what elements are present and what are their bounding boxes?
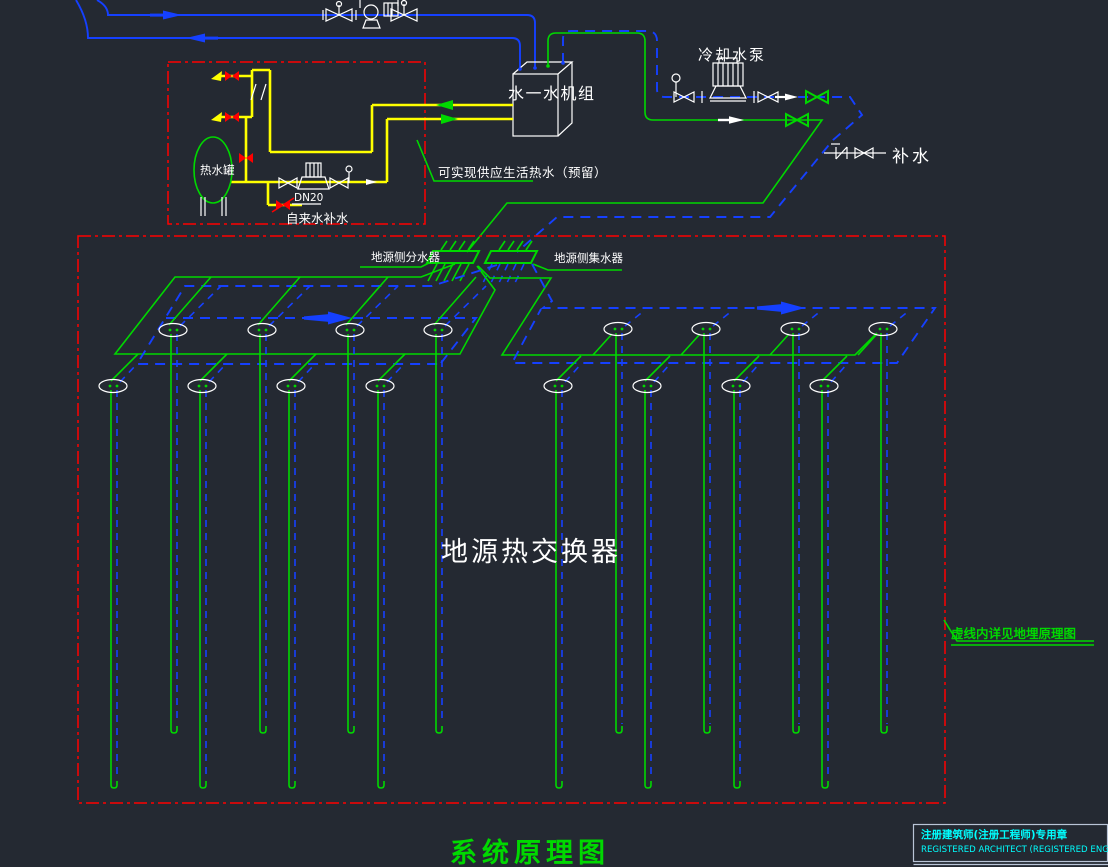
borehole-wellhead [810, 380, 838, 393]
dhw-note-label: 可实现供应生活热水（预留） [438, 165, 607, 180]
borehole-wellhead [99, 380, 127, 393]
ground-hx-label: 地源热交换器 [441, 537, 621, 568]
borehole-wellhead [277, 380, 305, 393]
tank-label: 热水罐 [200, 163, 235, 177]
borehole-wellhead [424, 324, 452, 337]
makeup-water-connection: 补水 [824, 144, 932, 167]
dashed-note: 虚线内详见地埋原理图 [944, 620, 1094, 645]
supply-manifold-label: 地源侧分水器 [371, 250, 440, 264]
tap-water-pump-icon [279, 163, 377, 189]
borehole-wellhead [188, 380, 216, 393]
borehole-wellhead [633, 380, 661, 393]
condenser-piping [76, 0, 535, 69]
flow-arrow-icon [441, 114, 458, 124]
stamp-cn-label: 注册建筑师(注册工程师)专用章 [921, 828, 1068, 841]
borehole-wellhead [722, 380, 750, 393]
borehole-wellhead [604, 323, 632, 336]
valve-icon [225, 71, 294, 212]
borehole-wellhead [336, 324, 364, 337]
flow-arrow-left-icon [186, 34, 218, 43]
borehole-wellhead [869, 323, 897, 336]
supply-manifold: 地源侧分水器 [360, 241, 479, 281]
ghe-boundary-box [78, 236, 945, 803]
stamp-block: 注册建筑师(注册工程师)专用章 REGISTERED ARCHITECT (RE… [914, 825, 1108, 865]
ghe-headers [115, 264, 935, 364]
return-manifold-label: 地源侧集水器 [554, 251, 623, 265]
dashed-note-label: 虚线内详见地埋原理图 [951, 626, 1076, 641]
dhw-note: 可实现供应生活热水（预留） [417, 140, 607, 181]
dhw-subsystem: 热水罐 DN20 自来水补水 [168, 62, 513, 226]
borehole-wellhead [159, 324, 187, 337]
cad-drawing-canvas[interactable]: 水一水机组 冷却水泵 [0, 0, 1108, 867]
heat-pump-unit: 水一水机组 [508, 61, 596, 136]
check-valve-icon [831, 144, 847, 159]
circulation-pump-assembly-icon [323, 0, 417, 28]
unit-label: 水一水机组 [508, 84, 596, 103]
drawing-title: 系统原理图 [450, 837, 610, 867]
drain-arrow-icon [211, 71, 222, 81]
flow-arrow-icon [304, 312, 352, 325]
borehole-wellhead [544, 380, 572, 393]
borehole-wellhead [781, 323, 809, 336]
borehole-wellhead [366, 380, 394, 393]
stamp-en-label: REGISTERED ARCHITECT (REGISTERED ENGINEE… [921, 845, 1108, 855]
borehole-wellhead [248, 324, 276, 337]
cooling-pump-label: 冷却水泵 [698, 46, 766, 64]
pipe-size-label: DN20 [294, 192, 323, 204]
system-schematic: 水一水机组 冷却水泵 [0, 0, 1108, 867]
drain-arrow-icon [211, 112, 222, 122]
tap-water-label: 自来水补水 [286, 211, 349, 226]
hot-water-tank: 热水罐 [194, 137, 235, 216]
makeup-water-label: 补水 [892, 147, 932, 167]
flow-arrow-icon [757, 302, 805, 315]
borehole-wellhead [692, 323, 720, 336]
flow-arrow-right-icon [150, 11, 182, 20]
source-side-piping [467, 31, 862, 252]
flow-arrow-icon [436, 100, 453, 110]
